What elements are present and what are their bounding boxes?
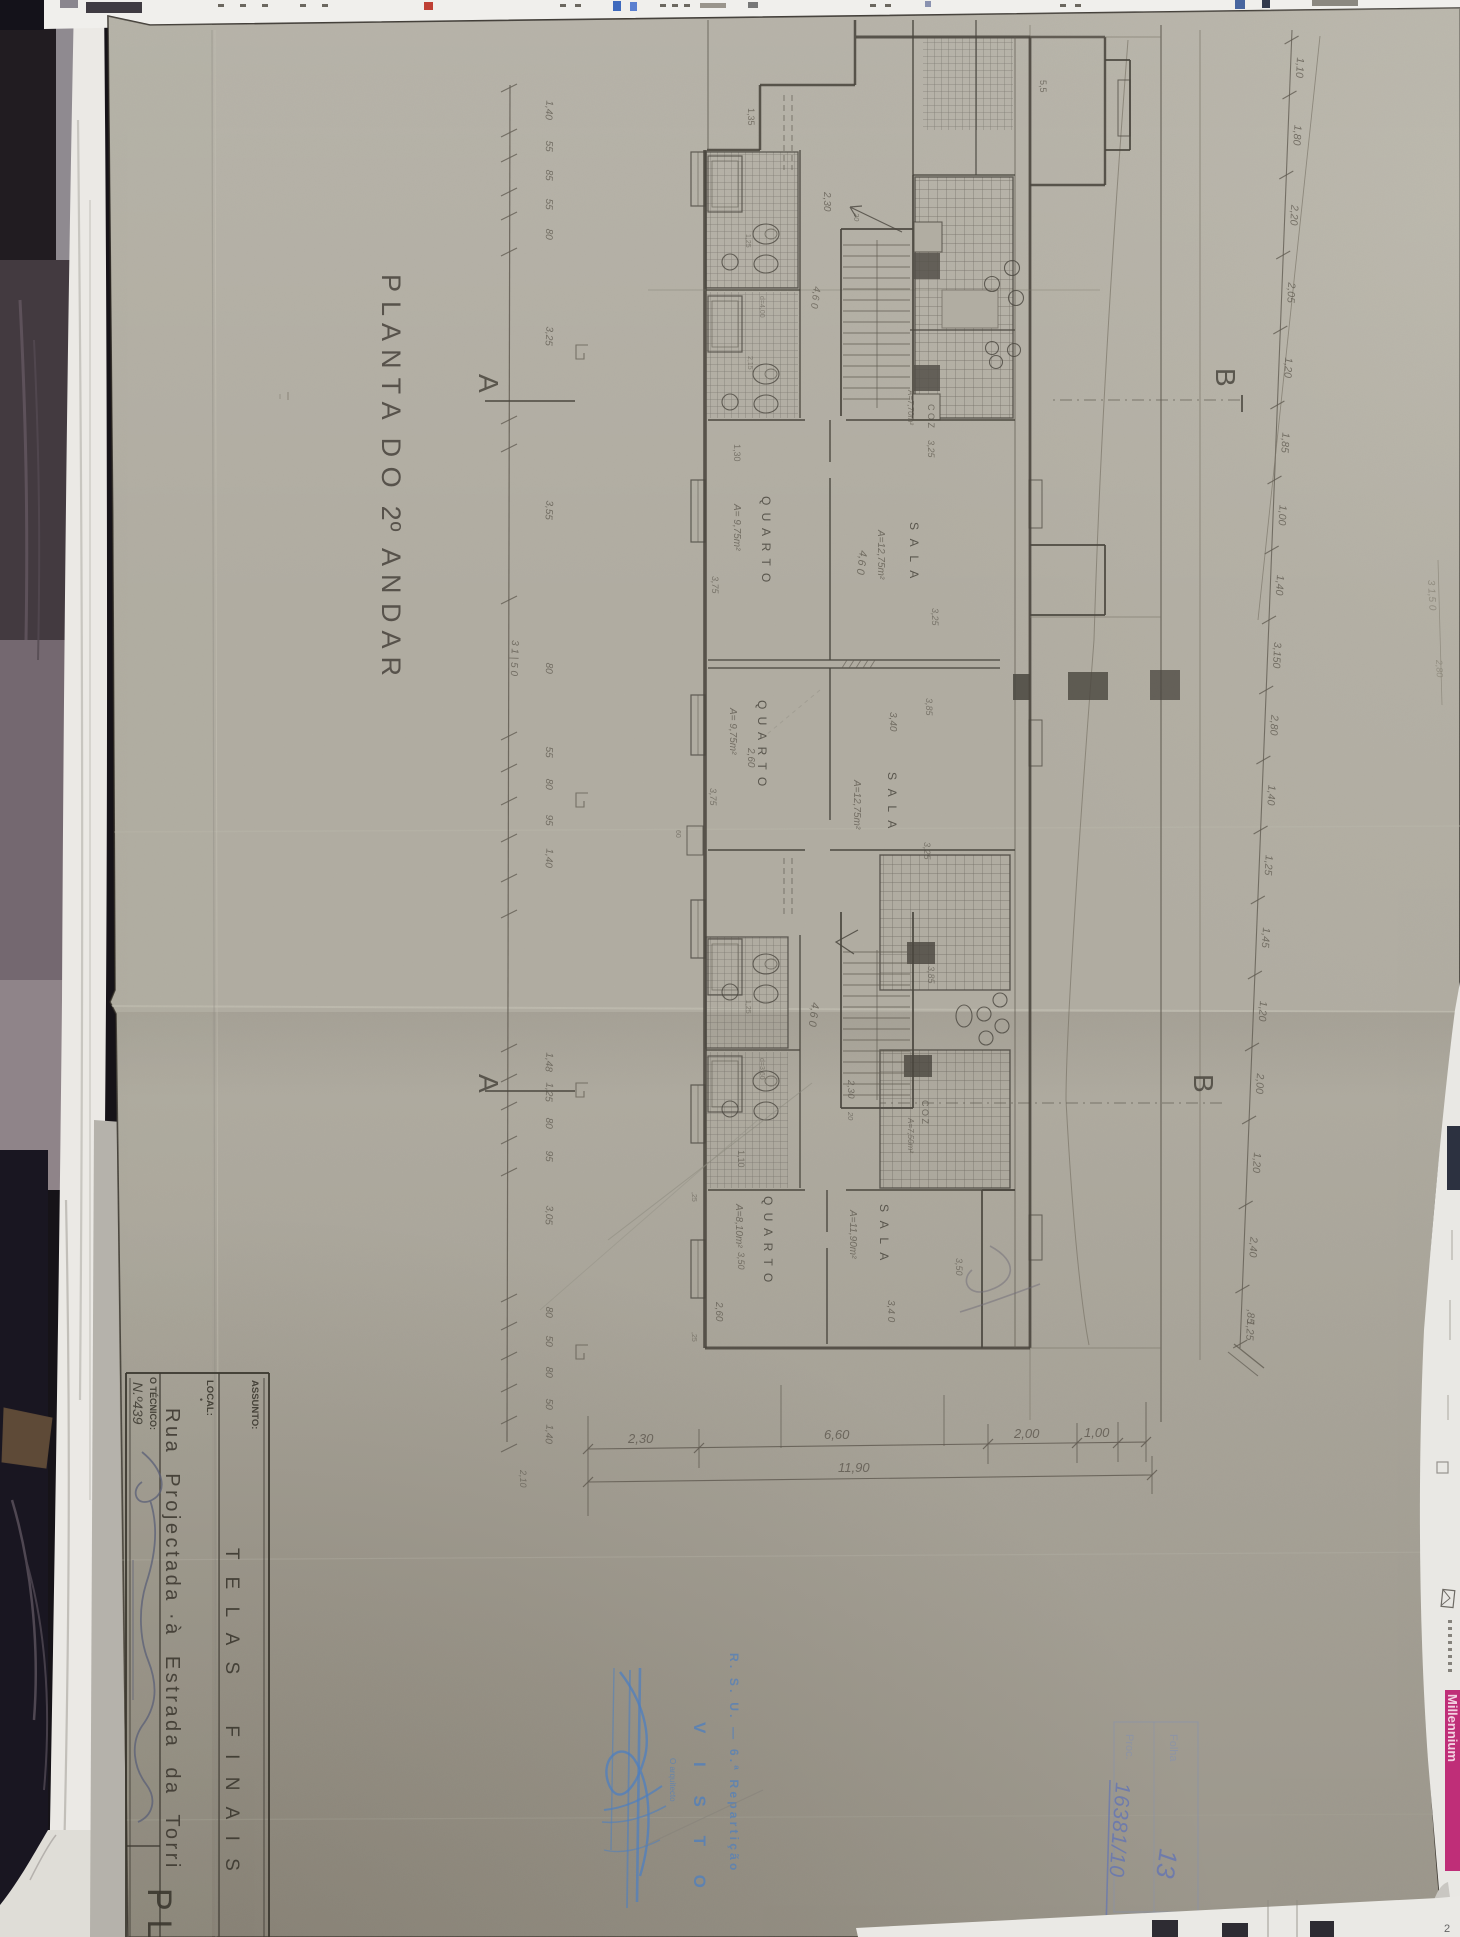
svg-text:1,40: 1,40	[542, 848, 554, 868]
svg-text:C O Z: C O Z	[920, 1100, 930, 1125]
svg-text:1,25: 1,25	[542, 1082, 554, 1102]
svg-text:1,25: 1,25	[1243, 1320, 1256, 1341]
svg-text:3,40: 3,40	[887, 712, 898, 732]
svg-text:Q U A R T O: Q U A R T O	[761, 1196, 775, 1284]
svg-text:V I S T O: V I S T O	[690, 1722, 709, 1900]
svg-text:2,00: 2,00	[1253, 1072, 1266, 1094]
svg-text:55: 55	[543, 198, 555, 210]
svg-text:2,20: 2,20	[1287, 204, 1300, 226]
svg-text:5,5: 5,5	[1038, 80, 1048, 93]
svg-text:2,05: 2,05	[1284, 281, 1297, 303]
svg-text:T E L A S F I N A I S: T E L A S F I N A I S	[221, 1548, 242, 1877]
svg-text:1,40: 1,40	[1273, 575, 1286, 596]
svg-text:3,75: 3,75	[708, 788, 718, 807]
svg-text:3,25: 3,25	[542, 326, 554, 346]
svg-text:1,48: 1,48	[542, 1052, 554, 1072]
svg-text:A= 9,75m²: A= 9,75m²	[727, 707, 738, 755]
svg-text:3,25: 3,25	[930, 608, 940, 627]
svg-text:1,25: 1,25	[1262, 855, 1275, 876]
svg-text:95: 95	[543, 814, 555, 826]
svg-text:3,50: 3,50	[954, 1258, 964, 1276]
svg-text:3,4 0: 3,4 0	[885, 1300, 896, 1323]
svg-text:P L: P L	[140, 1888, 178, 1937]
svg-text:3,85: 3,85	[926, 966, 936, 985]
svg-text:A=7,50m²: A=7,50m²	[906, 1117, 915, 1153]
svg-text:C O Z: C O Z	[926, 404, 936, 429]
svg-text:,25: ,25	[690, 1192, 697, 1202]
svg-text:2,10: 2,10	[518, 1469, 528, 1488]
svg-text:3,150: 3,150	[1270, 642, 1283, 669]
svg-text:2,60: 2,60	[745, 747, 756, 768]
svg-text:P L A N T A D O 2º A N D A: P L A N T A D O 2º A N D A R	[376, 274, 406, 677]
svg-text:1,30: 1,30	[732, 444, 742, 462]
svg-text:R. S. U. — 6.ª Repartição: R. S. U. — 6.ª Repartição	[727, 1653, 741, 1873]
svg-text:55: 55	[543, 746, 555, 758]
svg-text:Q U A R T O: Q U A R T O	[759, 496, 773, 584]
svg-text:2,40: 2,40	[1246, 1236, 1259, 1258]
svg-text:3,75: 3,75	[710, 576, 720, 595]
svg-text:A=12,75m²: A=12,75m²	[851, 779, 862, 830]
svg-text:3,50: 3,50	[736, 1252, 746, 1270]
svg-text:80: 80	[543, 1117, 555, 1129]
svg-text:2,00: 2,00	[1013, 1426, 1040, 1441]
svg-text:95: 95	[543, 1150, 555, 1162]
svg-text:11,90: 11,90	[838, 1460, 870, 1475]
svg-text:A=8,10m²: A=8,10m²	[733, 1203, 744, 1248]
svg-text:B: B	[1188, 1074, 1219, 1093]
svg-text:1,40: 1,40	[1264, 785, 1277, 806]
svg-text:1,45: 1,45	[1259, 927, 1272, 948]
svg-text:B: B	[1210, 368, 1241, 387]
svg-text:13: 13	[1150, 1847, 1184, 1880]
svg-text:1,80: 1,80	[1290, 125, 1303, 146]
svg-text:Folha: Folha	[1167, 1734, 1179, 1762]
svg-text:S A L A: S A L A	[885, 772, 899, 831]
svg-text:55: 55	[543, 140, 555, 152]
svg-text:O arquitecto: O arquitecto	[668, 1758, 677, 1802]
svg-text:1,20: 1,20	[1256, 1001, 1269, 1022]
svg-text:6,60: 6,60	[824, 1427, 850, 1442]
svg-text:50: 50	[543, 1335, 555, 1347]
svg-text:O TÉCNICO:: O TÉCNICO:	[148, 1377, 158, 1430]
svg-text:50: 50	[543, 1398, 555, 1410]
svg-text:2,60: 2,60	[713, 1301, 724, 1322]
svg-text:1,85: 1,85	[1278, 432, 1291, 453]
svg-text:3,25: 3,25	[926, 440, 936, 459]
svg-text:ASSUNTO:: ASSUNTO:	[249, 1380, 260, 1429]
svg-text:80: 80	[543, 662, 555, 674]
svg-text:3,55: 3,55	[542, 500, 554, 520]
svg-text:2,80: 2,80	[1267, 714, 1280, 736]
svg-text:2,30: 2,30	[821, 191, 832, 212]
svg-text:•: •	[196, 1398, 206, 1401]
svg-text:2,80: 2,80	[1434, 659, 1445, 678]
svg-text:Millennium: Millennium	[1445, 1694, 1460, 1762]
svg-text:60: 60	[674, 830, 681, 838]
svg-text:d=3,60: d=3,60	[758, 1058, 765, 1080]
svg-text:S A L A: S A L A	[877, 1204, 891, 1263]
svg-text:Proc.: Proc.	[1123, 1734, 1135, 1760]
svg-text:2,30: 2,30	[845, 1079, 856, 1099]
svg-text:2,30: 2,30	[627, 1431, 654, 1446]
svg-text:1,00: 1,00	[1084, 1425, 1110, 1440]
svg-text:80: 80	[543, 1366, 555, 1378]
svg-text:S A L A: S A L A	[907, 522, 921, 581]
svg-text:,25: ,25	[690, 1332, 697, 1342]
svg-text:1,10: 1,10	[1293, 57, 1306, 78]
svg-text:3,85: 3,85	[924, 698, 934, 717]
svg-text:N.º439: N.º439	[130, 1382, 146, 1425]
svg-text:3 1,5 0: 3 1,5 0	[1425, 580, 1438, 612]
svg-text:1,20: 1,20	[1250, 1152, 1263, 1173]
svg-text:80: 80	[543, 228, 555, 240]
svg-text:1,25: 1,25	[744, 1000, 751, 1014]
svg-text:Q U A R T O: Q U A R T O	[755, 700, 769, 788]
svg-text:85: 85	[543, 169, 555, 181]
svg-text:Rua Projectada ·à Estrada d: Rua Projectada ·à Estrada da Torri	[161, 1408, 183, 1871]
svg-text:20: 20	[852, 212, 861, 222]
svg-text:A: A	[473, 374, 504, 393]
svg-text:3,05: 3,05	[542, 1205, 554, 1225]
svg-text:A=12,75m²: A=12,75m²	[875, 529, 886, 580]
svg-text:1,10: 1,10	[736, 1150, 746, 1168]
svg-text:1,40: 1,40	[542, 1424, 554, 1444]
svg-text:80: 80	[543, 1306, 555, 1318]
svg-text:1,40: 1,40	[542, 100, 554, 120]
svg-text:2: 2	[1444, 1923, 1450, 1935]
svg-text:1,00: 1,00	[1276, 505, 1289, 526]
svg-text:20: 20	[846, 1111, 855, 1121]
svg-text:1,35: 1,35	[746, 108, 756, 126]
svg-text:3 1 | 5 0: 3 1 | 5 0	[508, 640, 520, 677]
svg-text:A= 9,75m²: A= 9,75m²	[731, 503, 742, 551]
svg-text:A=11,90m²: A=11,90m²	[847, 1209, 858, 1259]
svg-text:80: 80	[543, 778, 555, 790]
svg-text:1,20: 1,20	[1281, 357, 1294, 378]
